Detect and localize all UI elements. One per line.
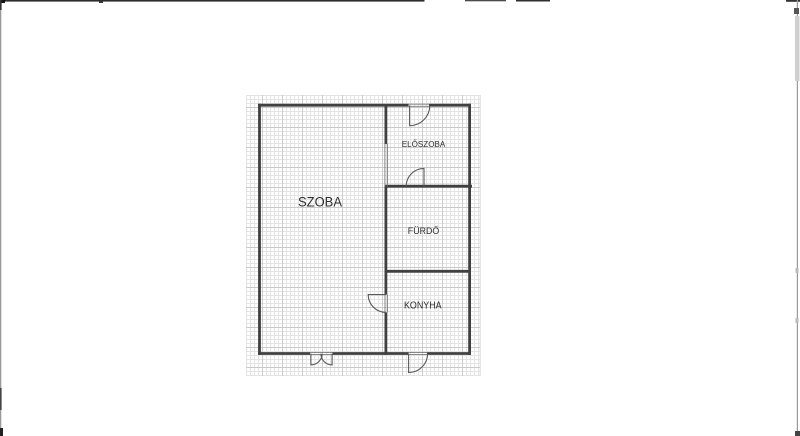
svg-text:ELŐSZOBA: ELŐSZOBA (402, 139, 446, 149)
svg-text:KONYHA: KONYHA (404, 301, 442, 312)
svg-text:FÜRDŐ: FÜRDŐ (408, 226, 439, 236)
svg-text:SZOBA: SZOBA (298, 194, 343, 210)
